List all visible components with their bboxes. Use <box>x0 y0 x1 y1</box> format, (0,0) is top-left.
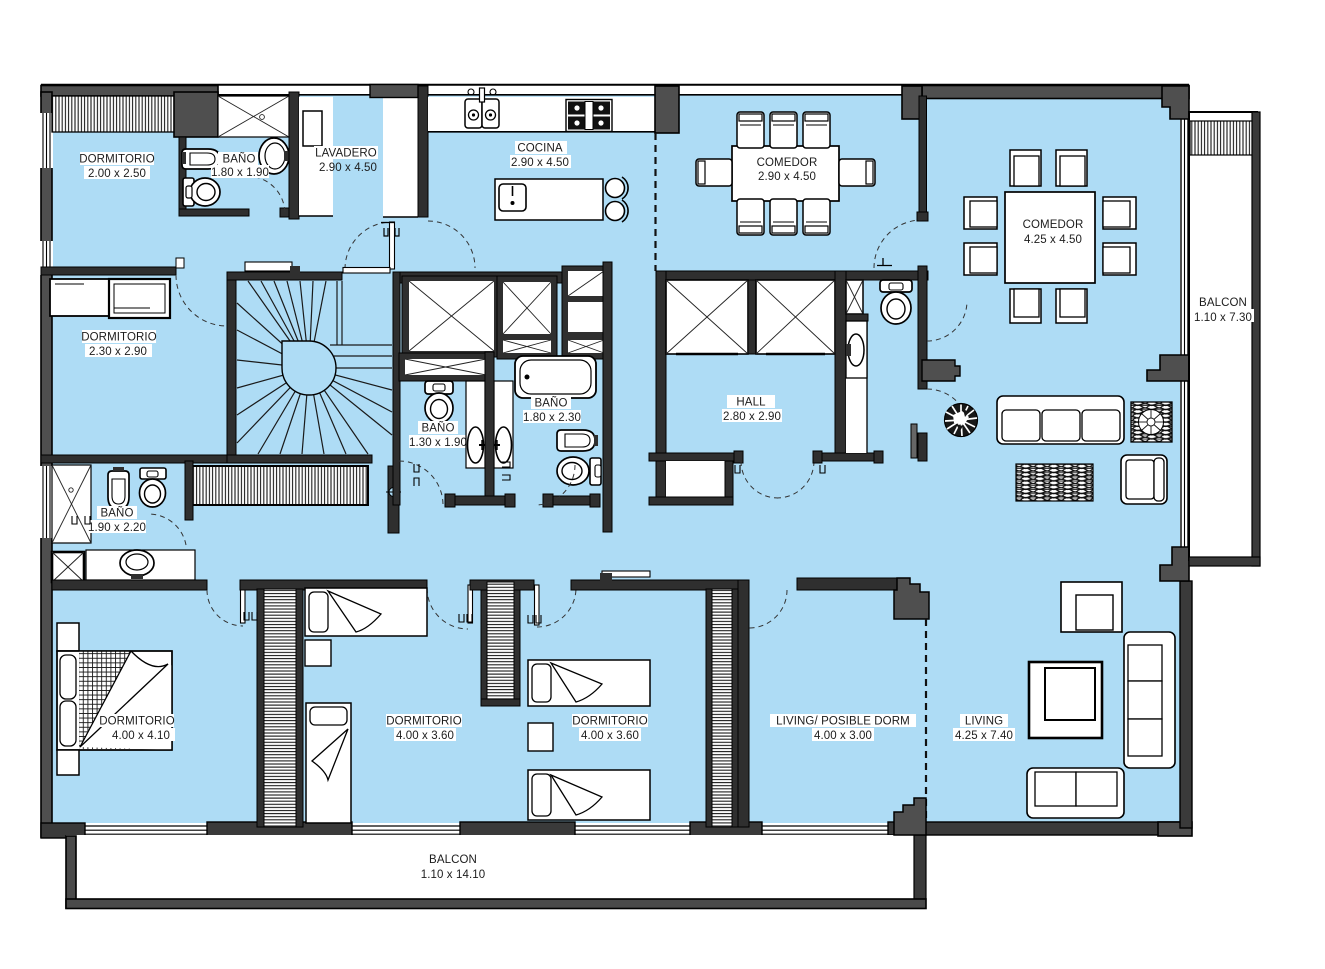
svg-text:1.30 x 1.90: 1.30 x 1.90 <box>409 437 467 449</box>
svg-text:2.80 x 2.90: 2.80 x 2.90 <box>723 411 781 423</box>
svg-text:BAÑO: BAÑO <box>535 397 568 410</box>
svg-text:BAÑO: BAÑO <box>223 153 256 166</box>
svg-text:2.90 x 4.50: 2.90 x 4.50 <box>511 157 569 169</box>
svg-text:4.00 x 3.60: 4.00 x 3.60 <box>396 730 454 742</box>
svg-text:4.00 x 3.60: 4.00 x 3.60 <box>581 730 639 742</box>
svg-text:DORMITORIO: DORMITORIO <box>79 154 155 166</box>
svg-text:2.90 x 4.50: 2.90 x 4.50 <box>319 162 377 174</box>
svg-text:DORMITORIO: DORMITORIO <box>386 716 462 728</box>
svg-text:2.30 x 2.90: 2.30 x 2.90 <box>89 346 147 358</box>
svg-text:BAÑO: BAÑO <box>101 507 134 520</box>
svg-text:LIVING/ POSIBLE DORM: LIVING/ POSIBLE DORM <box>776 716 910 728</box>
svg-text:COCINA: COCINA <box>517 143 563 155</box>
svg-text:1.10 x 7.30: 1.10 x 7.30 <box>1194 312 1252 324</box>
svg-text:1.80 x 1.90: 1.80 x 1.90 <box>211 167 269 179</box>
svg-text:DORMITORIO: DORMITORIO <box>572 716 648 728</box>
svg-text:1.10 x 14.10: 1.10 x 14.10 <box>421 869 486 881</box>
svg-text:4.00 x 3.00: 4.00 x 3.00 <box>814 730 872 742</box>
svg-text:COMEDOR: COMEDOR <box>757 157 818 169</box>
svg-text:4.25 x 7.40: 4.25 x 7.40 <box>955 730 1013 742</box>
svg-text:COMEDOR: COMEDOR <box>1023 219 1084 231</box>
svg-text:DORMITORIO: DORMITORIO <box>81 332 157 344</box>
svg-text:BALCON: BALCON <box>429 854 477 866</box>
svg-text:LIVING: LIVING <box>965 716 1003 728</box>
svg-text:DORMITORIO: DORMITORIO <box>99 716 175 728</box>
svg-text:2.00 x 2.50: 2.00 x 2.50 <box>88 168 146 180</box>
svg-text:1.80 x 2.30: 1.80 x 2.30 <box>523 412 581 424</box>
svg-text:LAVADERO: LAVADERO <box>315 148 377 160</box>
svg-text:HALL: HALL <box>736 397 766 409</box>
svg-text:BAÑO: BAÑO <box>422 422 455 435</box>
svg-text:2.90 x 4.50: 2.90 x 4.50 <box>758 171 816 183</box>
svg-text:4.25 x 4.50: 4.25 x 4.50 <box>1024 234 1082 246</box>
svg-text:4.00 x 4.10: 4.00 x 4.10 <box>112 730 170 742</box>
svg-text:BALCON: BALCON <box>1199 297 1247 309</box>
svg-text:1.90 x 2.20: 1.90 x 2.20 <box>88 522 146 534</box>
